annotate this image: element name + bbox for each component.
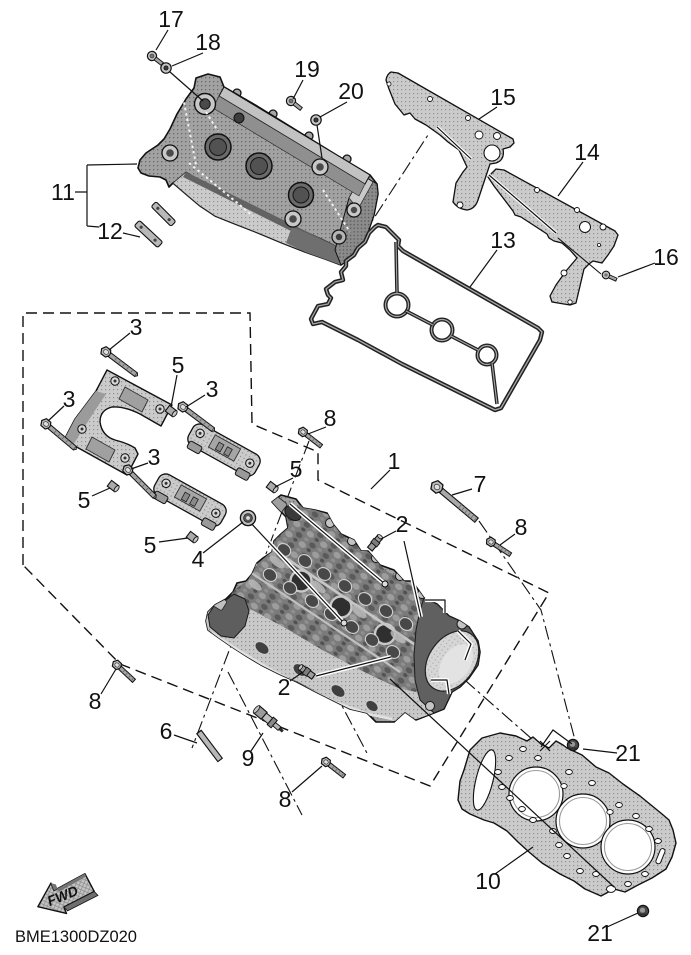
svg-text:14: 14 (574, 139, 600, 165)
svg-text:2: 2 (396, 511, 409, 537)
svg-text:2: 2 (278, 674, 291, 700)
svg-text:1: 1 (388, 448, 401, 474)
svg-text:19: 19 (294, 56, 320, 82)
svg-text:13: 13 (490, 227, 516, 253)
svg-text:BME1300DZ020: BME1300DZ020 (15, 928, 137, 946)
svg-text:16: 16 (653, 244, 679, 270)
svg-text:11: 11 (51, 179, 75, 205)
svg-text:7: 7 (474, 471, 487, 497)
svg-text:6: 6 (160, 718, 173, 744)
svg-text:21: 21 (587, 920, 613, 946)
svg-text:3: 3 (148, 444, 161, 470)
svg-text:4: 4 (192, 546, 205, 572)
svg-text:21: 21 (615, 740, 641, 766)
svg-text:3: 3 (63, 386, 76, 412)
svg-text:5: 5 (78, 487, 91, 513)
svg-text:8: 8 (324, 405, 337, 431)
svg-text:8: 8 (515, 514, 528, 540)
svg-text:17: 17 (158, 6, 184, 32)
svg-text:15: 15 (490, 84, 516, 110)
svg-text:5: 5 (172, 352, 185, 378)
svg-text:12: 12 (97, 218, 123, 244)
svg-text:3: 3 (130, 314, 143, 340)
svg-text:20: 20 (338, 78, 364, 104)
svg-text:8: 8 (279, 786, 292, 812)
svg-text:10: 10 (475, 868, 501, 894)
svg-text:9: 9 (242, 745, 255, 771)
svg-text:3: 3 (206, 376, 219, 402)
svg-text:5: 5 (290, 456, 303, 482)
svg-text:5: 5 (144, 532, 157, 558)
svg-text:18: 18 (195, 29, 221, 55)
svg-text:8: 8 (89, 688, 102, 714)
